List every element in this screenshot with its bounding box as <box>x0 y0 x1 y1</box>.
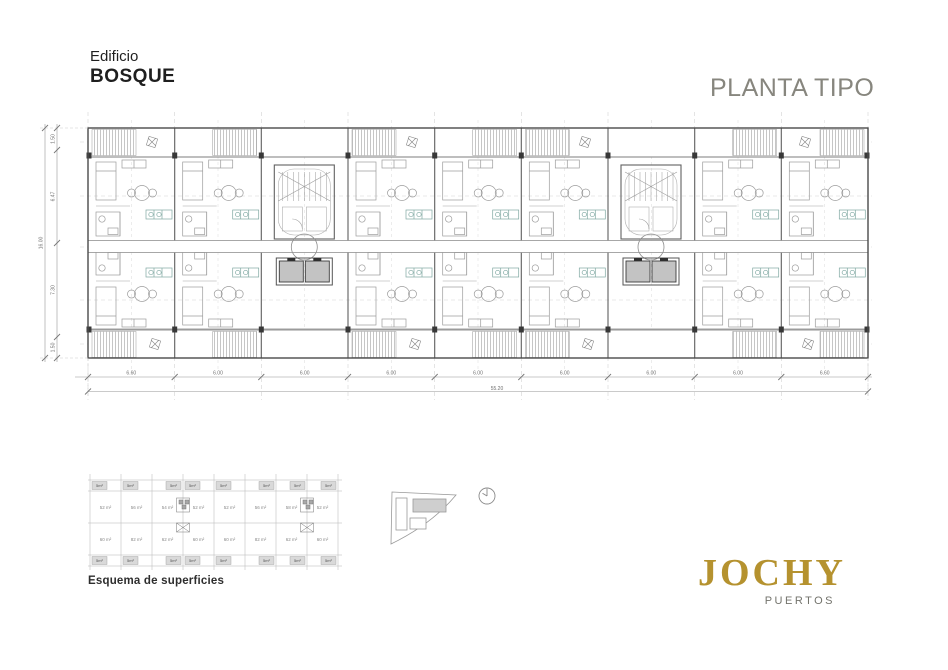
area-label: 52 m² <box>317 505 329 510</box>
brand-logo: JOCHY <box>698 554 840 592</box>
area-label: 62 m² <box>286 537 298 542</box>
dimension-line-bottom: 6.60 6.00 6.00 6.00 6.00 6.00 6.00 6.00 … <box>75 358 872 396</box>
area-label: 60 m² <box>317 537 329 542</box>
area-label: 60 m² <box>100 537 112 542</box>
balcony-area-label: 5m² <box>170 483 178 488</box>
area-label: 82 m² <box>255 537 267 542</box>
area-label: 52 m² <box>224 505 236 510</box>
drawing-sheet: Edificio BOSQUE PLANTA TIPO <box>0 0 948 670</box>
surface-scheme-diagram: 5m² 5m² 5m² 5m² 5m² 5m² 5m² 5m² 5m² 5m² … <box>88 474 350 570</box>
balcony-area-label: 5m² <box>189 483 197 488</box>
dim-label: 6.47 <box>51 191 57 201</box>
balcony-strip-top <box>88 128 868 157</box>
central-corridor <box>88 241 868 253</box>
dim-label: 6.00 <box>386 371 396 377</box>
north-symbol-icon <box>475 484 499 508</box>
balcony-area-label: 5m² <box>170 558 178 563</box>
balcony-area-label: 5m² <box>127 483 135 488</box>
area-label: 62 m² <box>162 537 174 542</box>
balcony-area-label: 5m² <box>96 483 104 488</box>
balcony-area-label: 5m² <box>96 558 104 563</box>
dim-total-label: 16.00 <box>39 237 45 250</box>
area-label: 56 m² <box>131 505 143 510</box>
balcony-area-label: 5m² <box>325 558 333 563</box>
balcony-area-label: 5m² <box>325 483 333 488</box>
dim-label: 6.00 <box>213 371 223 377</box>
dim-label: 1.50 <box>51 134 57 144</box>
balcony-strip-bottom <box>88 329 868 358</box>
balcony-area-label: 5m² <box>294 483 302 488</box>
dim-label: 7.30 <box>51 285 57 295</box>
floor-plan-drawing: 6.60 6.00 6.00 6.00 6.00 6.00 6.00 6.00 … <box>0 0 948 450</box>
area-label: 56 m² <box>255 505 267 510</box>
balcony-area-label: 5m² <box>294 558 302 563</box>
dim-label: 6.00 <box>473 371 483 377</box>
dim-label: 6.00 <box>300 371 310 377</box>
balcony-area-label: 5m² <box>220 558 228 563</box>
brand-block: JOCHY PUERTOS <box>698 554 840 607</box>
area-label: 60 m² <box>193 537 205 542</box>
balcony-area-label: 5m² <box>189 558 197 563</box>
site-key-building-highlight <box>413 499 446 512</box>
area-label: 52 m² <box>193 505 205 510</box>
area-label: 54 m² <box>162 505 174 510</box>
stair-core <box>274 165 681 285</box>
dimension-line-left: 1.50 6.47 7.30 1.50 16.00 <box>39 124 89 362</box>
brand-subtitle: PUERTOS <box>698 595 835 607</box>
dim-label: 6.00 <box>560 371 570 377</box>
site-key-plan <box>382 486 477 550</box>
area-label: 58 m² <box>286 505 298 510</box>
dim-label: 6.00 <box>733 371 743 377</box>
dim-label: 6.00 <box>646 371 656 377</box>
balcony-area-label: 5m² <box>263 558 271 563</box>
balcony-area-label: 5m² <box>127 558 135 563</box>
dim-total-label: 55.20 <box>491 386 504 392</box>
area-label: 82 m² <box>131 537 143 542</box>
area-label: 60 m² <box>224 537 236 542</box>
dim-label: 1.50 <box>51 342 57 352</box>
balcony-area-label: 5m² <box>220 483 228 488</box>
surface-scheme-caption: Esquema de superficies <box>88 575 224 587</box>
balcony-area-label: 5m² <box>263 483 271 488</box>
dim-label: 6.60 <box>820 371 830 377</box>
area-label: 52 m² <box>100 505 112 510</box>
dim-label: 6.60 <box>126 371 136 377</box>
